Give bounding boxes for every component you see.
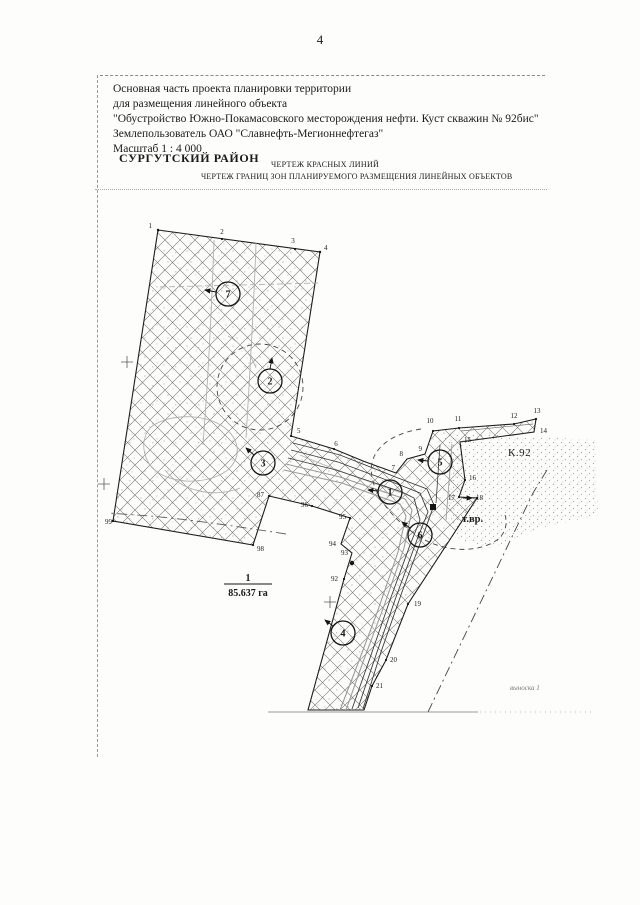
zone-callout-number: 2 [268,377,273,388]
vertex-label: 20 [390,656,398,664]
grid-cross [324,596,336,608]
site-plan-drawing: 7 2 3 1 5 [0,0,640,905]
vertex-label: 95 [339,513,347,521]
vertex-label: 92 [331,575,339,583]
vertex-label: 14 [540,427,548,435]
vertex-label: 1 [149,222,153,230]
vertex-label: 18 [476,494,484,502]
well-pad-label: К.92 [508,447,531,459]
zone-callout-number: 3 [261,459,266,470]
vertex-label: 2 [220,228,224,236]
zone-callout-number: 6 [418,531,423,542]
zone-callout-number: 7 [226,290,231,301]
vertex-label: 13 [534,407,542,415]
vertex-label: 6 [334,440,338,448]
vertex-label: 94 [329,540,337,548]
zone-callout-number: 1 [388,488,393,499]
vertex-label: 3 [291,237,295,245]
scanned-document-page: 4 Основная часть проекта планировки терр… [0,0,640,905]
route-node-dot [350,561,354,565]
vertex-label: 87 [257,491,265,499]
vertex-label: 11 [455,415,462,423]
vertex-label: 5 [297,427,301,435]
tie-in-point-marker [430,504,436,510]
vertex-label: 99 [105,518,113,526]
grid-cross [121,356,133,368]
vertex-label: 15 [464,436,472,444]
vertex-label: 8 [400,450,404,458]
zone-callout-number: 5 [438,458,443,469]
vertex-label: 93 [341,549,349,557]
vertex-label: 98 [257,545,265,553]
vertex-label: 19 [414,600,422,608]
vertex-label: 10 [427,417,435,425]
area-fraction: 1 85.637 га [224,573,272,599]
vertex-label: 12 [511,412,519,420]
vertex-label: 4 [324,244,328,252]
area-denominator: 85.637 га [228,588,268,599]
vertex-label: 16 [469,474,477,482]
tie-in-label: т.вр. [462,514,484,525]
vertex-label: 7 [392,464,396,472]
callout-label: выноска 1 [510,684,540,692]
vertex-label: 96 [301,501,309,509]
area-numerator: 1 [246,573,251,584]
vertex-label: 17 [448,494,456,502]
grid-cross [98,478,110,490]
vertex-label: 9 [419,445,423,453]
vertex-label: 21 [376,682,384,690]
zone-callout-number: 4 [341,629,346,640]
